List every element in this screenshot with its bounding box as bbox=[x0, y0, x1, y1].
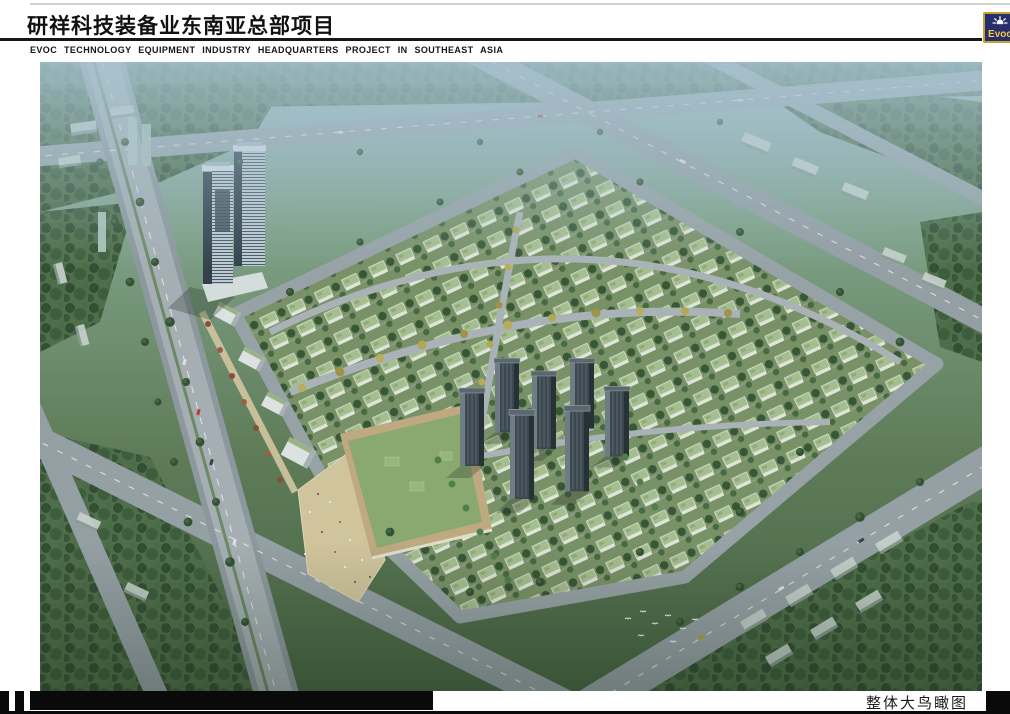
evoc-logo: Evoc bbox=[983, 12, 1010, 43]
evoc-logo-art: Evoc bbox=[985, 14, 1010, 41]
footer-long-bar bbox=[30, 691, 433, 710]
aerial-rendering bbox=[40, 62, 982, 691]
evoc-logo-text: Evoc bbox=[988, 29, 1010, 40]
aerial-rendering-art bbox=[40, 62, 982, 691]
footer-caption: 整体大鸟瞰图 bbox=[866, 692, 968, 713]
top-hairline bbox=[30, 3, 1010, 5]
title-underline bbox=[0, 38, 982, 41]
sunburst-icon bbox=[991, 16, 1009, 26]
page: { "header": { "title_cn": "研祥科技装备业东南亚总部项… bbox=[0, 0, 1010, 714]
page-title: 研祥科技装备业东南亚总部项目 bbox=[27, 10, 335, 40]
page-subtitle: EVOC TECHNOLOGY EQUIPMENT INDUSTRY HEADQ… bbox=[30, 45, 503, 55]
footer-corner-block bbox=[986, 691, 1010, 714]
